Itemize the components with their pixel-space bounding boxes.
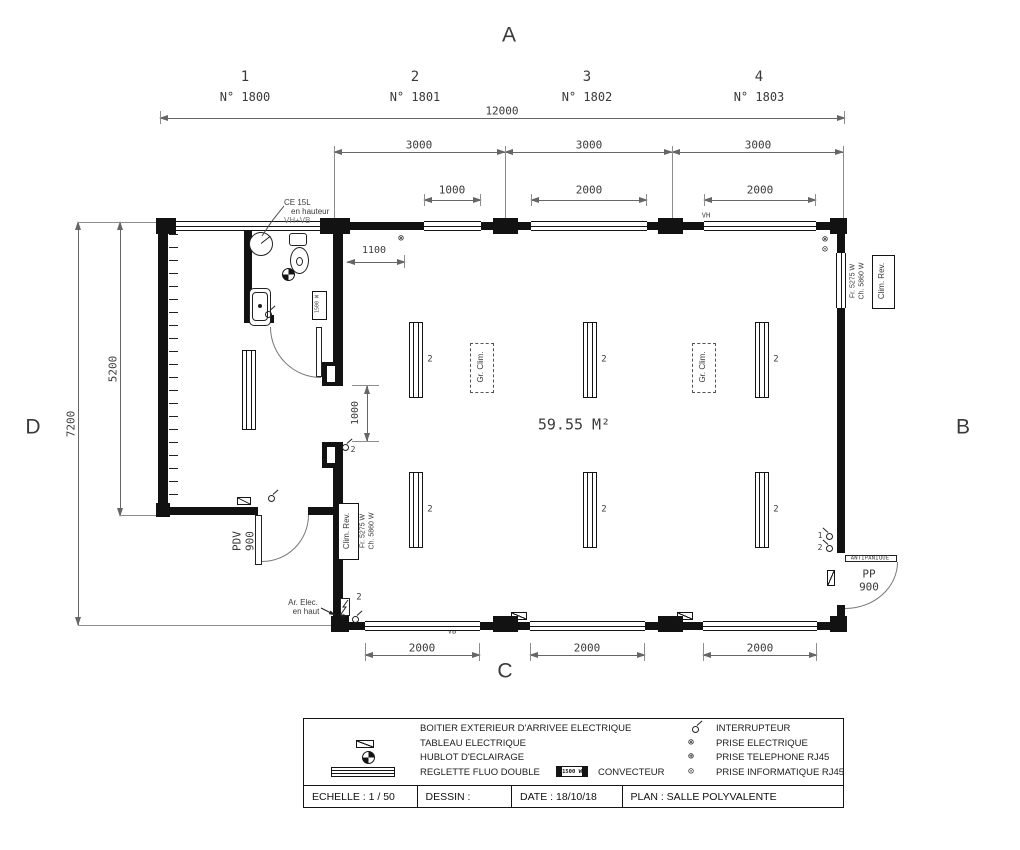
ceiling-light-icon xyxy=(362,751,375,764)
titleblock-drawing: DESSIN : xyxy=(417,785,513,808)
power-outlet-icon: ⊗ xyxy=(688,738,694,748)
legend-entry: PRISE TELEPHONE RJ45 xyxy=(716,753,829,763)
switch-icon xyxy=(692,726,699,733)
titleblock-date: DATE : 18/10/18 xyxy=(511,785,623,808)
electrical-panel-icon xyxy=(356,740,374,748)
legend-entry: HUBLOT D'ECLAIRAGE xyxy=(420,753,524,763)
legend-entry: TABLEAU ELECTRIQUE xyxy=(420,739,526,749)
ar-elec-arrow xyxy=(321,608,335,615)
titleblock-scale: ECHELLE : 1 / 50 xyxy=(303,785,418,808)
legend-entry: PRISE ELECTRIQUE xyxy=(716,739,808,749)
legend-entry: REGLETTE FLUO DOUBLE xyxy=(420,768,540,778)
legend-entry: BOITIER EXTERIEUR D'ARRIVEE ELECTRIQUE xyxy=(420,724,631,734)
lightning-icon xyxy=(341,600,348,614)
phone-outlet-icon: ⊕ xyxy=(688,752,694,762)
data-outlet-icon: ⊙ xyxy=(688,767,694,777)
titleblock-plan-name: PLAN : SALLE POLYVALENTE xyxy=(622,785,844,808)
fluorescent-strip-icon xyxy=(331,767,395,777)
convector-icon: 1500 W xyxy=(556,766,588,777)
legend-entry: PRISE INFORMATIQUE RJ45 xyxy=(716,768,844,778)
floor-plan: A B C D 1 2 3 4 N° 1800 N° 1801 N° 1802 … xyxy=(0,0,1020,850)
legend-entry: CONVECTEUR xyxy=(598,768,665,778)
ce-leader-line xyxy=(262,206,284,236)
legend-entry: INTERRUPTEUR xyxy=(716,724,790,734)
